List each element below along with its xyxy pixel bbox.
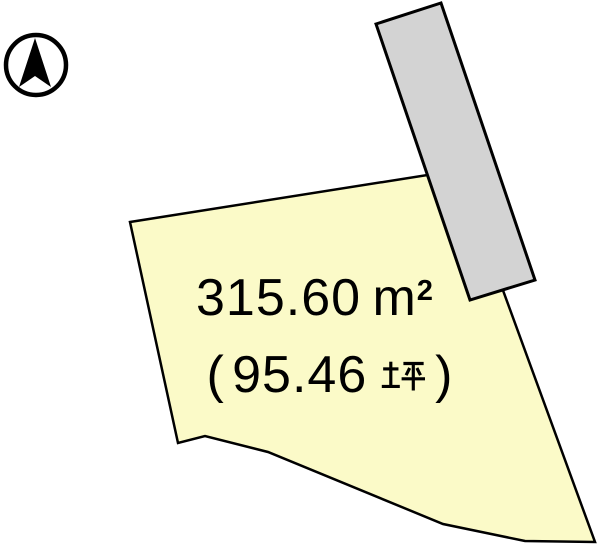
area-label-tsubo: (95.46 ) bbox=[155, 349, 505, 401]
north-arrow-icon bbox=[6, 35, 66, 95]
land-plot-diagram: 315.60m2 (95.46 ) bbox=[0, 0, 600, 545]
tsubo-open-paren: ( bbox=[207, 349, 225, 401]
area-value: 315.60 bbox=[196, 269, 361, 327]
tsubo-value: 95.46 bbox=[232, 346, 367, 404]
tsubo-kanji-icon bbox=[380, 350, 425, 395]
tsubo-close-paren: ) bbox=[435, 349, 453, 401]
compass-needle bbox=[19, 38, 51, 87]
area-unit-m: m bbox=[372, 269, 416, 327]
area-unit-exponent: 2 bbox=[417, 275, 434, 307]
area-label-m2: 315.60m2 bbox=[140, 272, 490, 324]
